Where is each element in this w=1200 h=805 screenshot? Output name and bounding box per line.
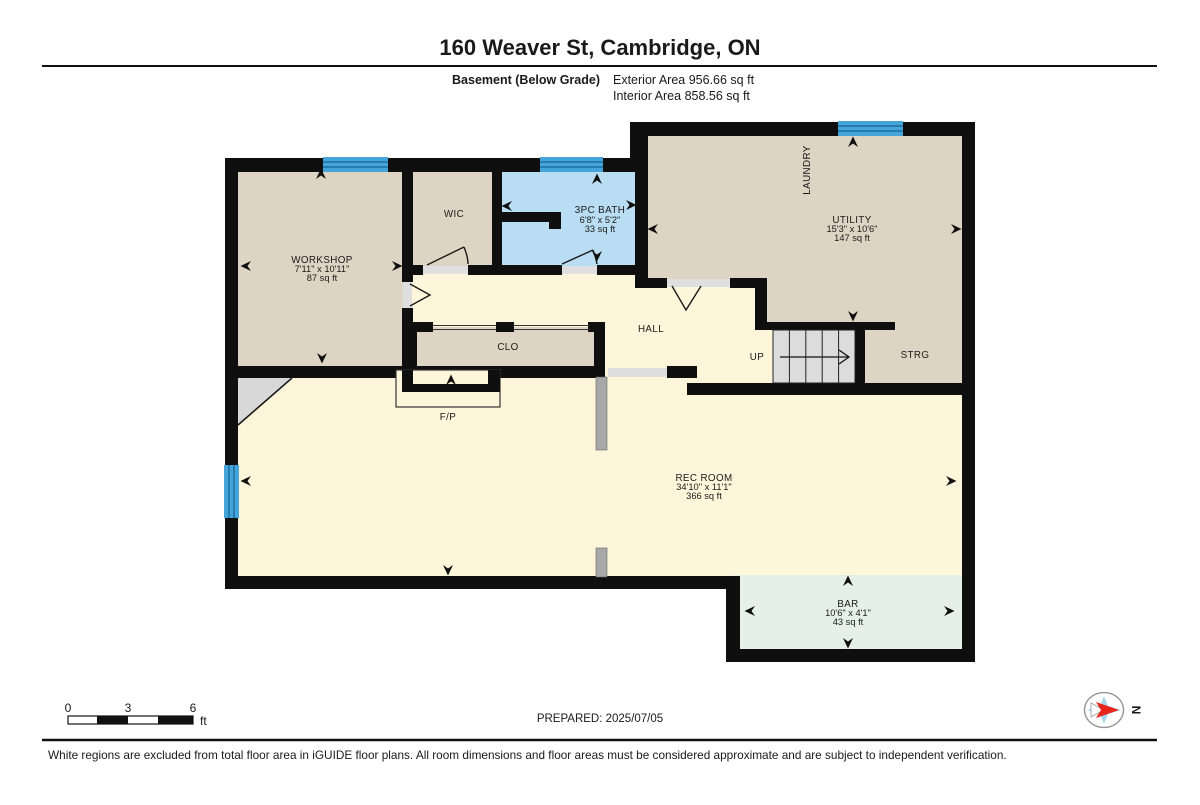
floorplan-page: 160 Weaver St, Cambridge, ON Basement (B… xyxy=(0,0,1200,805)
wall-stairs-top xyxy=(755,322,895,330)
column-post xyxy=(596,548,607,577)
utility-door-threshold xyxy=(667,279,730,287)
interior-area: Interior Area 858.56 sq ft xyxy=(613,89,750,103)
wall-recroom-top-right xyxy=(687,383,975,395)
workshop-door-threshold xyxy=(403,282,412,308)
svg-text:366 sq ft: 366 sq ft xyxy=(686,491,722,501)
wall-wic-bottom-left xyxy=(413,265,423,275)
footer: 0 3 6 ft PREPARED: 2025/07/05 N White re… xyxy=(42,693,1157,763)
wall-hall-bottom-right xyxy=(667,366,697,378)
wall-top-right-section xyxy=(630,122,975,136)
wall-bath-bottom-right xyxy=(597,265,635,275)
wall-bath-interior-v xyxy=(549,212,561,229)
wall-wic-bath xyxy=(492,158,502,275)
wall-bar-bottom xyxy=(726,649,975,662)
room-wic-label: WIC xyxy=(444,209,464,220)
floor-label: Basement (Below Grade) xyxy=(452,73,600,87)
wic-door-threshold xyxy=(423,266,468,274)
workshop-window xyxy=(323,157,388,172)
prepared-date: PREPARED: 2025/07/05 xyxy=(537,713,663,725)
wall-workshop-right-upper xyxy=(402,158,413,282)
scale-tick-0: 0 xyxy=(65,701,72,715)
stairs-up xyxy=(773,330,855,383)
wall-bath-utility xyxy=(635,136,648,288)
utility-window xyxy=(838,121,903,136)
bath-door-threshold xyxy=(562,266,597,274)
svg-text:43 sq ft: 43 sq ft xyxy=(833,617,864,627)
svg-text:33 sq ft: 33 sq ft xyxy=(585,224,616,234)
svg-text:87 sq ft: 87 sq ft xyxy=(307,273,338,283)
scale-bar: 0 3 6 ft xyxy=(65,701,208,728)
wall-stairs-right xyxy=(855,330,865,383)
room-laundry-label: LAUNDRY xyxy=(802,145,813,195)
wall-utility-bottom-right xyxy=(730,278,767,288)
room-clo-label: CLO xyxy=(497,342,518,353)
exterior-area: Exterior Area 956.66 sq ft xyxy=(613,73,755,87)
svg-text:147 sq ft: 147 sq ft xyxy=(834,233,870,243)
wall-utility-bottom-left xyxy=(635,278,667,288)
room-storage-label: STRG xyxy=(901,350,930,361)
compass-north-label: N xyxy=(1129,706,1143,715)
scale-tick-6: 6 xyxy=(190,701,197,715)
scale-tick-3: 3 xyxy=(125,701,132,715)
wall-clo-top-left xyxy=(417,322,433,332)
wall-bottom-recroom xyxy=(225,576,740,589)
room-hall-label: HALL xyxy=(638,324,664,335)
page-title: 160 Weaver St, Cambridge, ON xyxy=(439,35,760,60)
column-post xyxy=(596,377,607,450)
wall-clo-top-right xyxy=(588,322,605,332)
fireplace-label: F/P xyxy=(440,412,457,423)
compass-icon: N xyxy=(1085,693,1144,728)
header: 160 Weaver St, Cambridge, ON Basement (B… xyxy=(42,35,1157,103)
disclaimer-text: White regions are excluded from total fl… xyxy=(48,748,1007,762)
stairs-up-label: UP xyxy=(750,352,764,363)
hall-opening-threshold xyxy=(608,368,667,377)
scale-unit: ft xyxy=(200,714,207,728)
wall-wic-bath-bottom xyxy=(468,265,562,275)
recroom-window xyxy=(224,465,239,518)
floorplan-canvas: 160 Weaver St, Cambridge, ON Basement (B… xyxy=(0,0,1200,805)
bath-window xyxy=(540,157,603,172)
fireplace xyxy=(396,370,500,407)
